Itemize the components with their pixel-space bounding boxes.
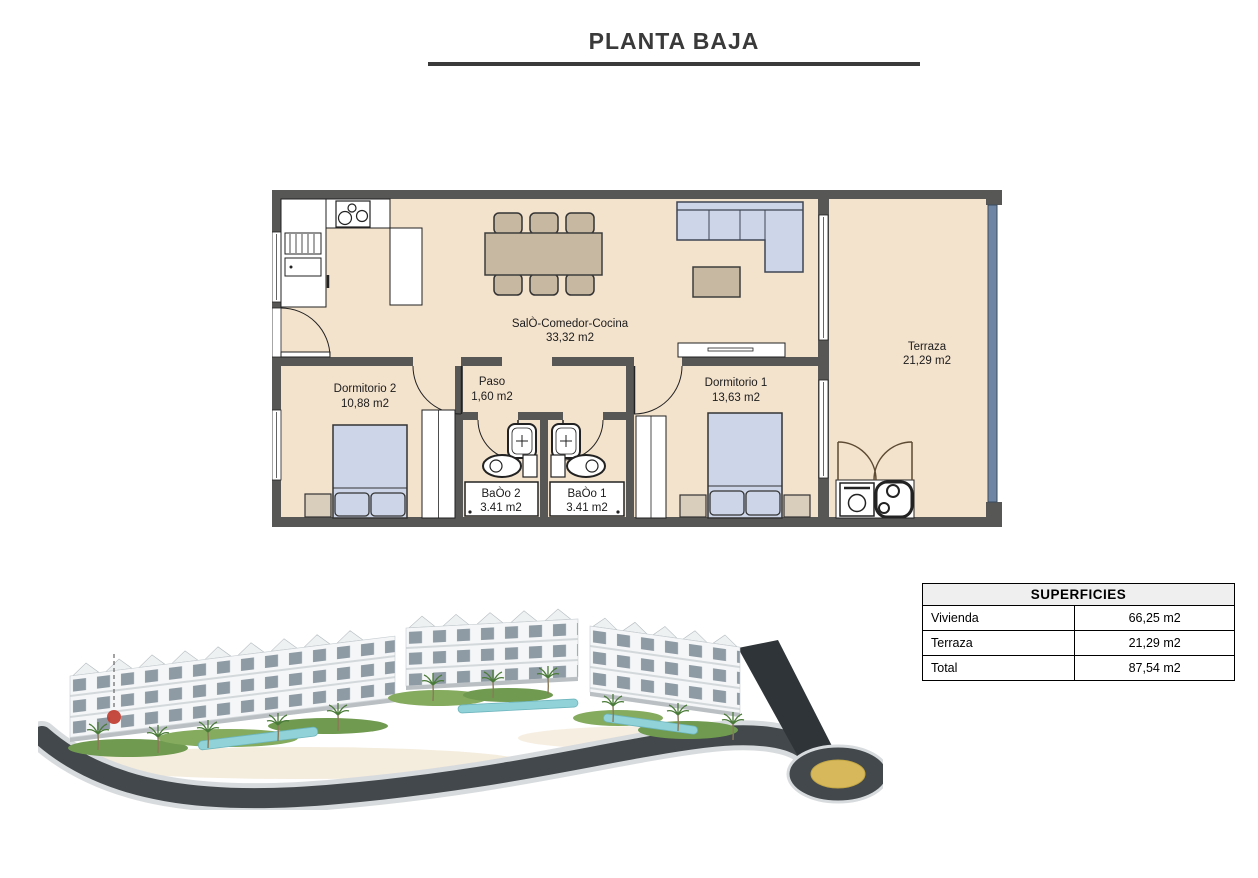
room-label-paso: Paso	[479, 376, 505, 388]
building-render	[38, 598, 883, 810]
room-area-paso: 1,60 m2	[471, 391, 513, 403]
page-title: PLANTA BAJA	[428, 28, 920, 55]
washing-machine	[840, 483, 874, 516]
terrace-railing	[988, 205, 997, 502]
floor-plan: SalÒ-Comedor-Cocina 33,32 m2 Terraza 21,…	[272, 188, 1002, 528]
kitchen-hob	[336, 201, 370, 227]
surface-label: Terraza	[923, 631, 1075, 656]
surface-label: Vivienda	[923, 606, 1075, 631]
dining-table	[485, 233, 602, 275]
surface-value: 21,29 m2	[1075, 631, 1235, 656]
room-label-terraza: Terraza	[908, 341, 947, 353]
table-row: Total 87,54 m2	[923, 656, 1235, 681]
nightstand	[784, 495, 810, 517]
surface-value: 66,25 m2	[1075, 606, 1235, 631]
surfaces-table-title: SUPERFICIES	[923, 584, 1235, 606]
surfaces-table: SUPERFICIES Vivienda 66,25 m2 Terraza 21…	[922, 583, 1235, 681]
boiler	[876, 482, 912, 517]
room-area-bano1: 3.41 m2	[566, 502, 608, 514]
nightstand	[305, 494, 331, 517]
room-label-dormitorio2: Dormitorio 2	[334, 383, 397, 395]
room-area-dormitorio1: 13,63 m2	[712, 392, 760, 404]
coffee-table	[693, 267, 740, 297]
bed-dorm1	[708, 413, 782, 518]
nightstand	[680, 495, 706, 517]
wardrobe-dorm1	[636, 416, 666, 518]
tv-bench	[678, 343, 785, 357]
wardrobe-dorm2	[422, 410, 455, 518]
room-area-salon: 33,32 m2	[546, 332, 594, 344]
building-block-middle	[406, 608, 578, 690]
room-label-salon: SalÒ-Comedor-Cocina	[512, 317, 629, 330]
bed-dorm2	[333, 425, 407, 518]
room-label-bano1: BaÒo 1	[568, 487, 607, 500]
room-area-dormitorio2: 10,88 m2	[341, 398, 389, 410]
room-label-bano2: BaÒo 2	[482, 487, 521, 500]
roundabout	[788, 746, 883, 802]
room-area-bano2: 3.41 m2	[480, 502, 522, 514]
table-row: Terraza 21,29 m2	[923, 631, 1235, 656]
surface-value: 87,54 m2	[1075, 656, 1235, 681]
room-label-dormitorio1: Dormitorio 1	[705, 377, 768, 389]
surface-label: Total	[923, 656, 1075, 681]
room-area-terraza: 21,29 m2	[903, 355, 951, 367]
table-row: Vivienda 66,25 m2	[923, 606, 1235, 631]
title-underline	[428, 62, 920, 66]
